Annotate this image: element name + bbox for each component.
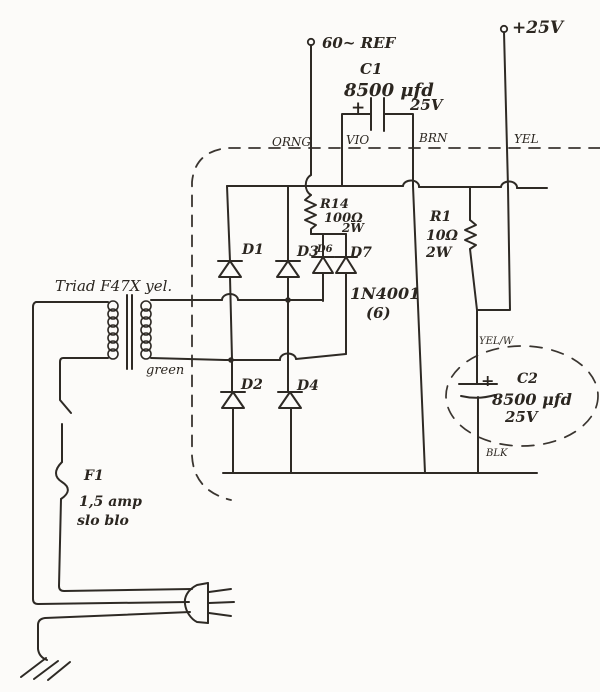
fuse-rating-label: 1,5 amp bbox=[79, 494, 142, 510]
diode-part-label: 1N4001 bbox=[350, 284, 420, 303]
transformer-label: Triad F47X yel. bbox=[55, 277, 172, 295]
c2-polarity-label: + bbox=[481, 371, 494, 390]
ground-lead-wire bbox=[38, 612, 190, 660]
c2-name-label: C2 bbox=[517, 371, 538, 387]
c2-value-label: 8500 μfd bbox=[491, 390, 572, 409]
brn-ground-wire bbox=[413, 186, 425, 473]
c2-voltage-label: 25V bbox=[504, 408, 539, 426]
r1-bottom-wire bbox=[470, 249, 477, 310]
diode-quantity-label: (6) bbox=[366, 304, 391, 322]
wire-orng-label: ORNG bbox=[272, 135, 311, 149]
c1-name-label: C1 bbox=[360, 60, 382, 78]
r1-zigzag bbox=[465, 220, 476, 249]
diode-d1 bbox=[218, 186, 242, 359]
ref-line bbox=[306, 39, 314, 195]
transformer-primary-coil bbox=[108, 301, 118, 359]
diode-d3 bbox=[276, 186, 300, 392]
ac-plug bbox=[185, 583, 234, 623]
ground-slash-3 bbox=[48, 662, 70, 680]
power-supply-schematic: 60~ REF +25V C1 8500 μfd 25V + ORNG VIO … bbox=[0, 0, 600, 692]
chassis-boundary-dashed bbox=[192, 148, 600, 500]
ground-slash-1 bbox=[21, 658, 46, 677]
d1-cathode-wire bbox=[227, 186, 230, 261]
schematic-sheet: 60~ REF +25V C1 8500 μfd 25V + ORNG VIO … bbox=[0, 0, 600, 692]
wire-vio-label: VIO bbox=[346, 133, 369, 147]
secondary-yel-wire bbox=[151, 294, 323, 300]
c1-left-wire bbox=[342, 114, 371, 186]
fuse-name-label: F1 bbox=[83, 468, 104, 484]
secondary-green-wire bbox=[151, 353, 346, 360]
d3-label: D3 bbox=[296, 244, 319, 260]
vplus-wire bbox=[477, 32, 510, 310]
r1-power-label: 2W bbox=[425, 245, 453, 261]
rail-hop-yel bbox=[501, 181, 517, 188]
d2-triangle bbox=[222, 392, 244, 408]
plug-prong-middle bbox=[209, 602, 234, 603]
resistor-r1 bbox=[465, 188, 477, 310]
primary-bottom-wire bbox=[60, 358, 108, 413]
d1-anode-wire bbox=[230, 277, 232, 359]
plug-prong-bottom bbox=[209, 613, 231, 616]
junction-d3-yel bbox=[285, 297, 291, 303]
d7-label: D7 bbox=[349, 245, 372, 261]
c1-voltage-label: 25V bbox=[409, 96, 444, 114]
plug-prong-top bbox=[209, 589, 231, 592]
r14-zigzag bbox=[305, 195, 316, 234]
r1-name-label: R1 bbox=[429, 209, 451, 225]
wire-green-label: green bbox=[146, 363, 184, 378]
fuse-squiggle bbox=[56, 462, 68, 499]
primary-top-wire bbox=[33, 302, 189, 604]
earth-ground bbox=[21, 612, 190, 680]
transformer-secondary-coil bbox=[141, 301, 151, 359]
d2-label: D2 bbox=[240, 377, 263, 393]
rail-hop-brn bbox=[403, 180, 419, 187]
transformer bbox=[108, 295, 151, 369]
r1-value-label: 10Ω bbox=[426, 228, 458, 244]
wire-yelw-label: YEL/W bbox=[479, 336, 514, 347]
c1-polarity-label: + bbox=[351, 98, 365, 118]
d1-label: D1 bbox=[241, 242, 264, 258]
d3-triangle bbox=[277, 261, 299, 277]
wire-brn-label: BRN bbox=[418, 131, 448, 145]
wire-blk-label: BLK bbox=[485, 448, 508, 459]
dc-rail bbox=[227, 180, 547, 188]
ref-label: 60~ REF bbox=[322, 34, 397, 52]
junction-d1-green bbox=[228, 357, 234, 363]
r14-name-label: R14 bbox=[319, 197, 349, 212]
d1-triangle bbox=[219, 261, 241, 277]
r14-power-label: 2W bbox=[341, 221, 365, 235]
d4-label: D4 bbox=[296, 378, 319, 394]
d4-triangle bbox=[279, 392, 301, 408]
diode-d4 bbox=[278, 392, 302, 473]
d6-label: D6 bbox=[316, 244, 333, 255]
vplus-line bbox=[477, 26, 510, 310]
fuse-type-label: slo blo bbox=[77, 513, 129, 529]
c1-right-wire bbox=[384, 114, 413, 186]
vplus-label: +25V bbox=[512, 18, 565, 38]
wire-yel-label: YEL bbox=[514, 132, 539, 146]
